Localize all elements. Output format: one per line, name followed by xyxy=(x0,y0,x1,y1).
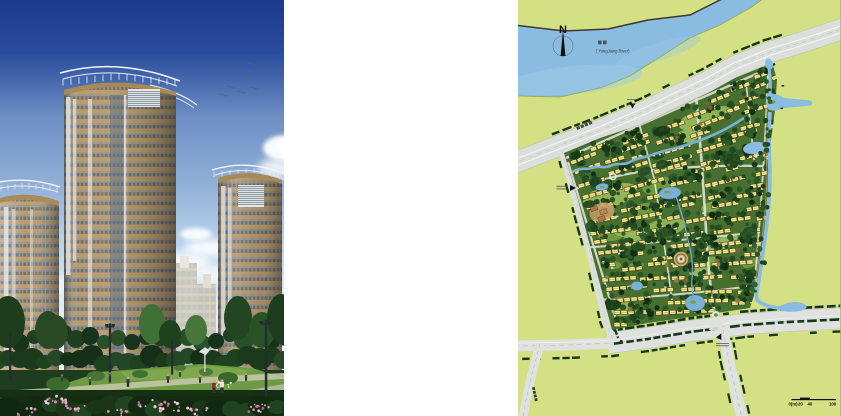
svg-text:0(m): 0(m) xyxy=(789,402,799,407)
svg-text:( YongJiang River): ( YongJiang River) xyxy=(596,49,630,54)
svg-text:100: 100 xyxy=(829,402,837,407)
svg-text:20: 20 xyxy=(798,402,803,407)
svg-text:N: N xyxy=(559,24,567,36)
svg-text:40: 40 xyxy=(808,402,813,407)
